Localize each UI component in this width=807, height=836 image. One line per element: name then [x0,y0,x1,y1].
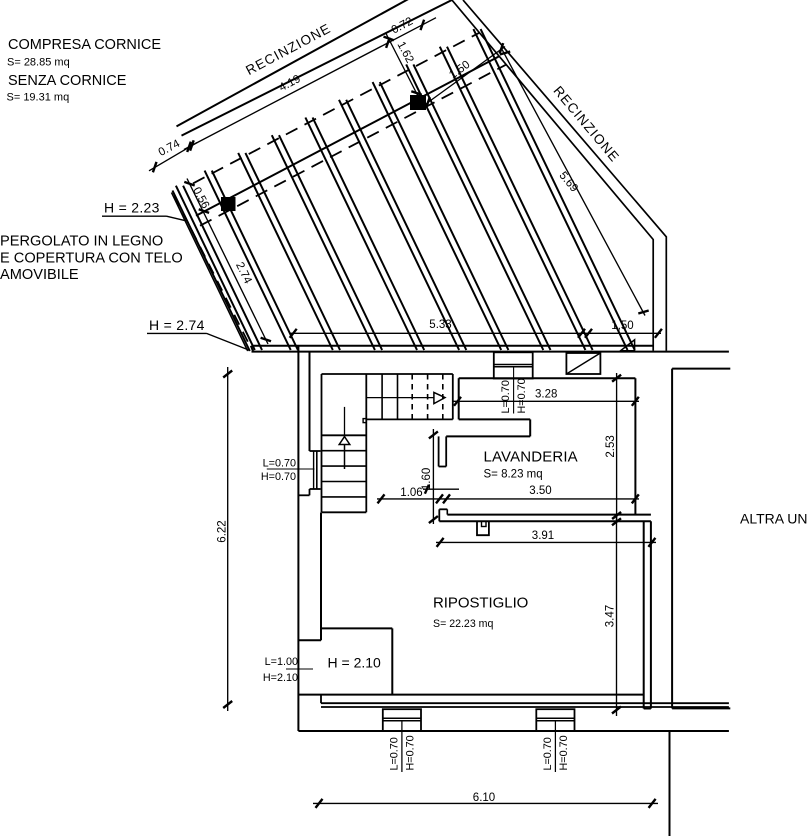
svg-text:6.10: 6.10 [473,792,495,804]
svg-text:H = 2.10: H = 2.10 [328,654,382,670]
svg-text:L=0.70: L=0.70 [500,380,512,413]
svg-text:6.22: 6.22 [217,520,229,542]
svg-text:3.91: 3.91 [532,530,554,542]
svg-text:H=0.70: H=0.70 [405,735,417,770]
svg-text:RIPOSTIGLIO: RIPOSTIGLIO [433,595,528,612]
svg-text:2.53: 2.53 [605,435,617,457]
svg-text:S= 8.23 mq: S= 8.23 mq [484,469,543,481]
svg-text:L=1.00: L=1.00 [265,656,298,668]
svg-text:3.47: 3.47 [605,605,617,627]
svg-text:H = 2.23: H = 2.23 [104,200,160,216]
svg-text:1,50: 1,50 [611,320,633,332]
svg-text:AMOVIBILE: AMOVIBILE [0,267,79,283]
svg-text:1.60: 1.60 [421,468,433,490]
svg-text:S= 19.31 mq: S= 19.31 mq [7,92,70,104]
svg-text:L=0.70: L=0.70 [542,737,554,770]
svg-text:ALTRA UNI: ALTRA UNI [740,511,807,527]
svg-text:LAVANDERIA: LAVANDERIA [484,449,578,466]
svg-text:E COPERTURA CON TELO: E COPERTURA CON TELO [0,250,183,266]
svg-text:H=2.10: H=2.10 [263,672,298,684]
svg-text:H=0.70: H=0.70 [558,735,570,770]
svg-text:S= 22.23 mq: S= 22.23 mq [433,618,493,630]
svg-text:L=0.70: L=0.70 [388,737,400,770]
svg-text:H=0.70: H=0.70 [516,378,528,413]
svg-text:H = 2.74: H = 2.74 [149,317,205,333]
svg-text:SENZA CORNICE: SENZA CORNICE [8,73,127,89]
svg-text:H=0.70: H=0.70 [261,471,296,483]
svg-text:COMPRESA CORNICE: COMPRESA CORNICE [8,37,161,53]
svg-text:3.28: 3.28 [535,389,557,401]
svg-text:S= 28.85 mq: S= 28.85 mq [7,57,70,69]
svg-text:L=0.70: L=0.70 [263,458,296,470]
svg-text:5.33: 5.33 [429,319,451,331]
svg-text:PERGOLATO IN LEGNO: PERGOLATO IN LEGNO [0,234,163,250]
svg-text:3.50: 3.50 [529,485,551,497]
svg-text:1.06: 1.06 [400,487,422,499]
